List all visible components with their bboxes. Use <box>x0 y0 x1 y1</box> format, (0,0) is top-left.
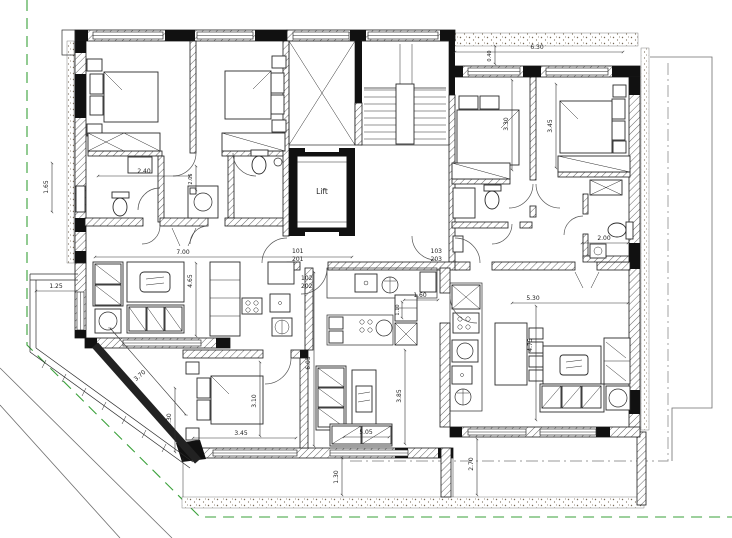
dimension-label: 5.30 <box>166 413 173 427</box>
toilet-icon <box>608 222 633 239</box>
wardrobe-icon <box>558 156 630 172</box>
tv-table-icon <box>352 370 376 428</box>
floor-plan-canvas: Lift1012011032031022026.300.403.303.452.… <box>0 0 732 538</box>
unit-label-201: 201 <box>292 256 304 263</box>
dimension-label: 4.75 <box>527 338 534 352</box>
dimension-label: 3.45 <box>547 119 554 133</box>
dimension-label: 7.00 <box>176 249 190 256</box>
armchair-icon <box>95 309 121 333</box>
dimension-label: 1.25 <box>49 283 63 290</box>
dimension-label: 5.05 <box>359 429 373 436</box>
staircase <box>355 41 455 145</box>
fixture-icon <box>274 158 282 166</box>
furniture <box>76 56 633 446</box>
sofa-icon <box>540 384 604 412</box>
bed-icon <box>87 59 158 136</box>
dimension-label: 3.30 <box>503 117 510 131</box>
wardrobe-icon <box>88 133 160 151</box>
site-line-2 <box>0 405 120 538</box>
dimension-label: 1.65 <box>43 180 50 194</box>
toilet-icon <box>484 185 501 209</box>
radiator-icon <box>76 186 85 212</box>
vanity-icon <box>453 188 475 218</box>
dimension-label: 5.30 <box>526 295 540 302</box>
wardrobe-icon <box>590 180 622 195</box>
stair-lift-core <box>289 41 455 236</box>
washing-machine-icon <box>188 186 218 218</box>
kitchen-counter-icon <box>327 268 437 345</box>
sink-icon <box>590 244 606 258</box>
kitchen-counter-icon <box>450 283 482 411</box>
neighbor-outline <box>650 57 712 461</box>
dimension-label: 2.00 <box>597 235 611 242</box>
dimension-label: 3.45 <box>234 430 248 437</box>
dimension-label: 2.05 <box>188 173 194 184</box>
dimension-label: 1.10 <box>395 304 401 315</box>
lift-label: Lift <box>316 187 328 196</box>
toilet-icon <box>251 150 268 174</box>
stipple-top <box>452 33 638 46</box>
dimension-label: 1.60 <box>413 292 427 299</box>
unit-label-203: 203 <box>431 256 443 263</box>
stipple-bottom <box>182 497 644 508</box>
dimension-label: 1.30 <box>333 470 340 484</box>
unit-label-102: 102 <box>301 275 313 282</box>
kitchen-counter-icon <box>210 262 294 336</box>
dimension-label: 3.85 <box>396 389 403 403</box>
stipple-right <box>641 48 649 430</box>
wardrobe-icon <box>452 163 510 179</box>
toilet-icon <box>112 192 129 216</box>
armchair-icon <box>606 386 630 410</box>
sofa-icon <box>316 366 346 430</box>
dimension-label: 4.65 <box>187 274 194 288</box>
diagonal-wall <box>95 345 198 461</box>
dimension-label: 0.40 <box>487 50 493 61</box>
coffee-table-icon <box>127 262 184 302</box>
dimension-label: 3.10 <box>251 394 258 408</box>
unit-label-101: 101 <box>292 248 304 255</box>
tv-cabinet-icon <box>604 338 630 384</box>
coffee-table-icon <box>543 346 601 384</box>
stipple-left <box>67 41 74 263</box>
dimension-label: 3.70 <box>133 369 148 383</box>
bed-icon <box>225 56 286 132</box>
floor-plan-page: Lift1012011032031022026.300.403.303.452.… <box>0 0 732 538</box>
dimension-label: 6.05 <box>305 356 312 370</box>
unit-label-103: 103 <box>431 248 443 255</box>
dimension-label: 2.70 <box>468 457 475 471</box>
dimension-label: 6.30 <box>530 44 544 51</box>
bed-icon <box>560 85 626 153</box>
unit-label-202: 202 <box>301 283 313 290</box>
dimension-label: 2.40 <box>137 168 151 175</box>
wardrobe-icon <box>222 133 285 151</box>
site-line-1 <box>0 368 172 538</box>
